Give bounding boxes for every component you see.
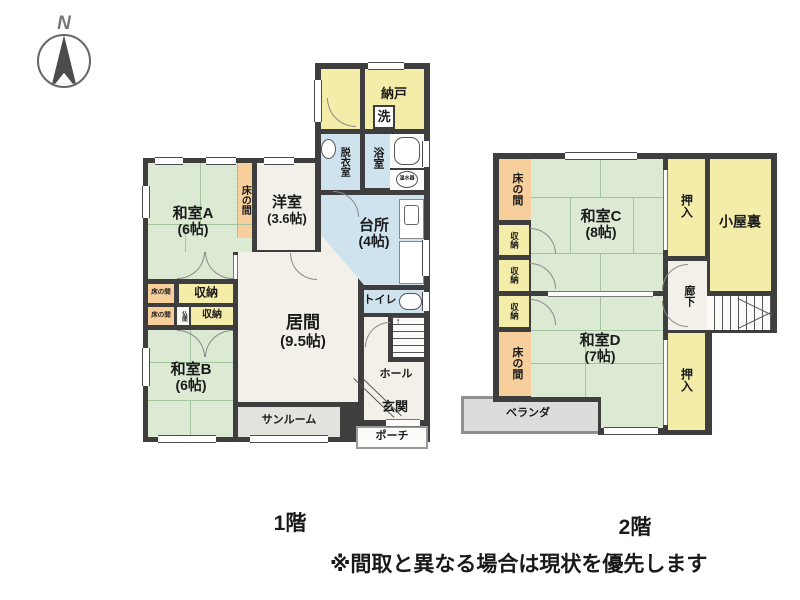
label-yokushitsu: 浴室 bbox=[371, 147, 383, 169]
window bbox=[250, 435, 328, 443]
label-porch: ポーチ bbox=[376, 431, 409, 443]
window bbox=[604, 427, 658, 435]
label-tokonoma-strip: 床の間 bbox=[239, 185, 250, 215]
window bbox=[314, 80, 322, 122]
kitchen-counter-2 bbox=[399, 241, 424, 284]
disclaimer-note: ※間取と異なる場合は現状を優先します bbox=[330, 548, 770, 578]
label-shuno-2: 収納 bbox=[202, 311, 222, 322]
compass-north-label: N bbox=[57, 14, 71, 34]
tatami-line bbox=[600, 296, 601, 330]
sliding-door bbox=[548, 291, 653, 297]
label-onsuiki: 温水器 bbox=[399, 176, 414, 181]
label-ima: 居間 (9.5帖) bbox=[280, 314, 326, 350]
label-butsuma: 仏間 bbox=[180, 311, 186, 322]
window bbox=[155, 157, 183, 165]
label-hall: ホール bbox=[380, 369, 413, 381]
label-oshiire-top: 押入 bbox=[680, 194, 693, 218]
sliding-door bbox=[663, 170, 668, 250]
label-tokonoma-small-1: 床の間 bbox=[151, 290, 171, 297]
window bbox=[158, 435, 216, 443]
label-washitsuD-name: 和室D bbox=[580, 332, 621, 349]
label-ima-size: (9.5帖) bbox=[280, 333, 326, 350]
label-washitsuB-size: (6帖) bbox=[175, 377, 206, 393]
sliding-door bbox=[233, 255, 238, 279]
label-washitsuD: 和室D (7帖) bbox=[580, 333, 621, 365]
label-daidokoro-name: 台所 bbox=[359, 217, 389, 234]
tatami-line bbox=[190, 400, 191, 437]
label-oshiire-bottom: 押入 bbox=[680, 368, 693, 392]
label-f2-tokonoma-top: 床の間 bbox=[510, 173, 522, 206]
window bbox=[422, 141, 430, 167]
window bbox=[368, 62, 404, 70]
sink-icon bbox=[321, 139, 336, 159]
label-yoshitsu-name: 洋室 bbox=[272, 194, 302, 211]
label-roka: 廊下 bbox=[682, 285, 694, 307]
label-koyaura: 小屋裏 bbox=[719, 215, 761, 230]
label-washitsuB-name: 和室B bbox=[171, 361, 212, 378]
tatami-line bbox=[633, 197, 634, 253]
tatami-line bbox=[570, 197, 571, 253]
label-ima-name: 居間 bbox=[286, 313, 320, 332]
label-washitsuA-name: 和室A bbox=[173, 205, 214, 222]
label-washitsuC: 和室C (8帖) bbox=[581, 209, 622, 241]
label-washitsuB: 和室B (6帖) bbox=[171, 362, 212, 394]
label-sunroom: サンルーム bbox=[262, 415, 317, 427]
compass-needle-icon bbox=[37, 34, 91, 88]
f2-stairs bbox=[707, 296, 771, 330]
label-yoshitsu: 洋室 (3.6帖) bbox=[267, 195, 307, 227]
f1-stairs bbox=[388, 317, 424, 362]
window bbox=[142, 186, 150, 218]
tatami-line bbox=[531, 330, 663, 331]
label-washitsuD-size: (7帖) bbox=[584, 348, 615, 364]
tatami-line bbox=[600, 253, 601, 291]
label-washitsuC-name: 和室C bbox=[581, 208, 622, 225]
label-toilet: トイレ bbox=[364, 295, 397, 307]
entry-door bbox=[386, 419, 420, 427]
f2-room-washitsuD-ext bbox=[601, 397, 663, 428]
floor-plan-canvas: N bbox=[0, 0, 800, 600]
label-veranda: ベランダ bbox=[506, 408, 550, 420]
toilet-icon bbox=[399, 293, 422, 310]
label-f2-tokonoma-bottom: 床の間 bbox=[510, 347, 522, 380]
window bbox=[565, 152, 637, 160]
kitchen-sink-icon bbox=[404, 205, 419, 225]
tatami-line bbox=[600, 159, 601, 197]
window bbox=[142, 348, 150, 386]
floor1-caption: 1階 bbox=[255, 507, 325, 537]
window bbox=[422, 240, 430, 276]
window bbox=[264, 157, 294, 165]
compass: N bbox=[34, 12, 94, 90]
floor2-caption: 2階 bbox=[600, 511, 670, 541]
label-genkan: 玄関 bbox=[382, 400, 408, 414]
label-washitsuA-size: (6帖) bbox=[177, 221, 208, 237]
label-f2-shuno-3: 収納 bbox=[510, 303, 519, 320]
label-daidokoro: 台所 (4帖) bbox=[358, 218, 389, 250]
label-nando: 納戸 bbox=[381, 87, 407, 101]
label-datsuishitsu: 脱衣室 bbox=[338, 147, 349, 177]
label-washitsuA: 和室A (6帖) bbox=[173, 206, 214, 238]
tatami-line bbox=[531, 197, 663, 198]
label-tokonoma-small-2: 床の間 bbox=[151, 313, 171, 320]
label-washitsuC-size: (8帖) bbox=[585, 224, 616, 240]
label-daidokoro-size: (4帖) bbox=[358, 233, 389, 249]
sliding-door bbox=[663, 340, 668, 425]
window bbox=[422, 292, 430, 311]
stairs-arrow: ↑ bbox=[396, 318, 401, 329]
label-f2-shuno-1: 収納 bbox=[510, 232, 519, 249]
window bbox=[206, 157, 236, 165]
label-shuno-1: 収納 bbox=[194, 287, 218, 300]
label-yoshitsu-size: (3.6帖) bbox=[267, 211, 307, 226]
label-sen: 洗 bbox=[377, 110, 390, 124]
bathtub-icon bbox=[394, 137, 420, 165]
label-f2-shuno-2: 収納 bbox=[510, 267, 519, 284]
